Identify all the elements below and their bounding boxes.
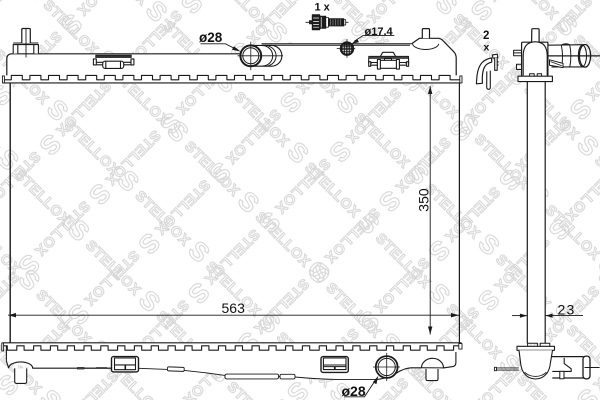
svg-text:x: x	[484, 42, 490, 54]
svg-text:1 x: 1 x	[315, 2, 331, 14]
svg-text:ø17.4: ø17.4	[365, 26, 394, 38]
svg-text:350: 350	[416, 188, 432, 212]
svg-text:563: 563	[222, 300, 246, 316]
svg-text:23: 23	[558, 302, 576, 318]
svg-text:ø28: ø28	[199, 30, 223, 45]
svg-text:2: 2	[483, 30, 489, 42]
